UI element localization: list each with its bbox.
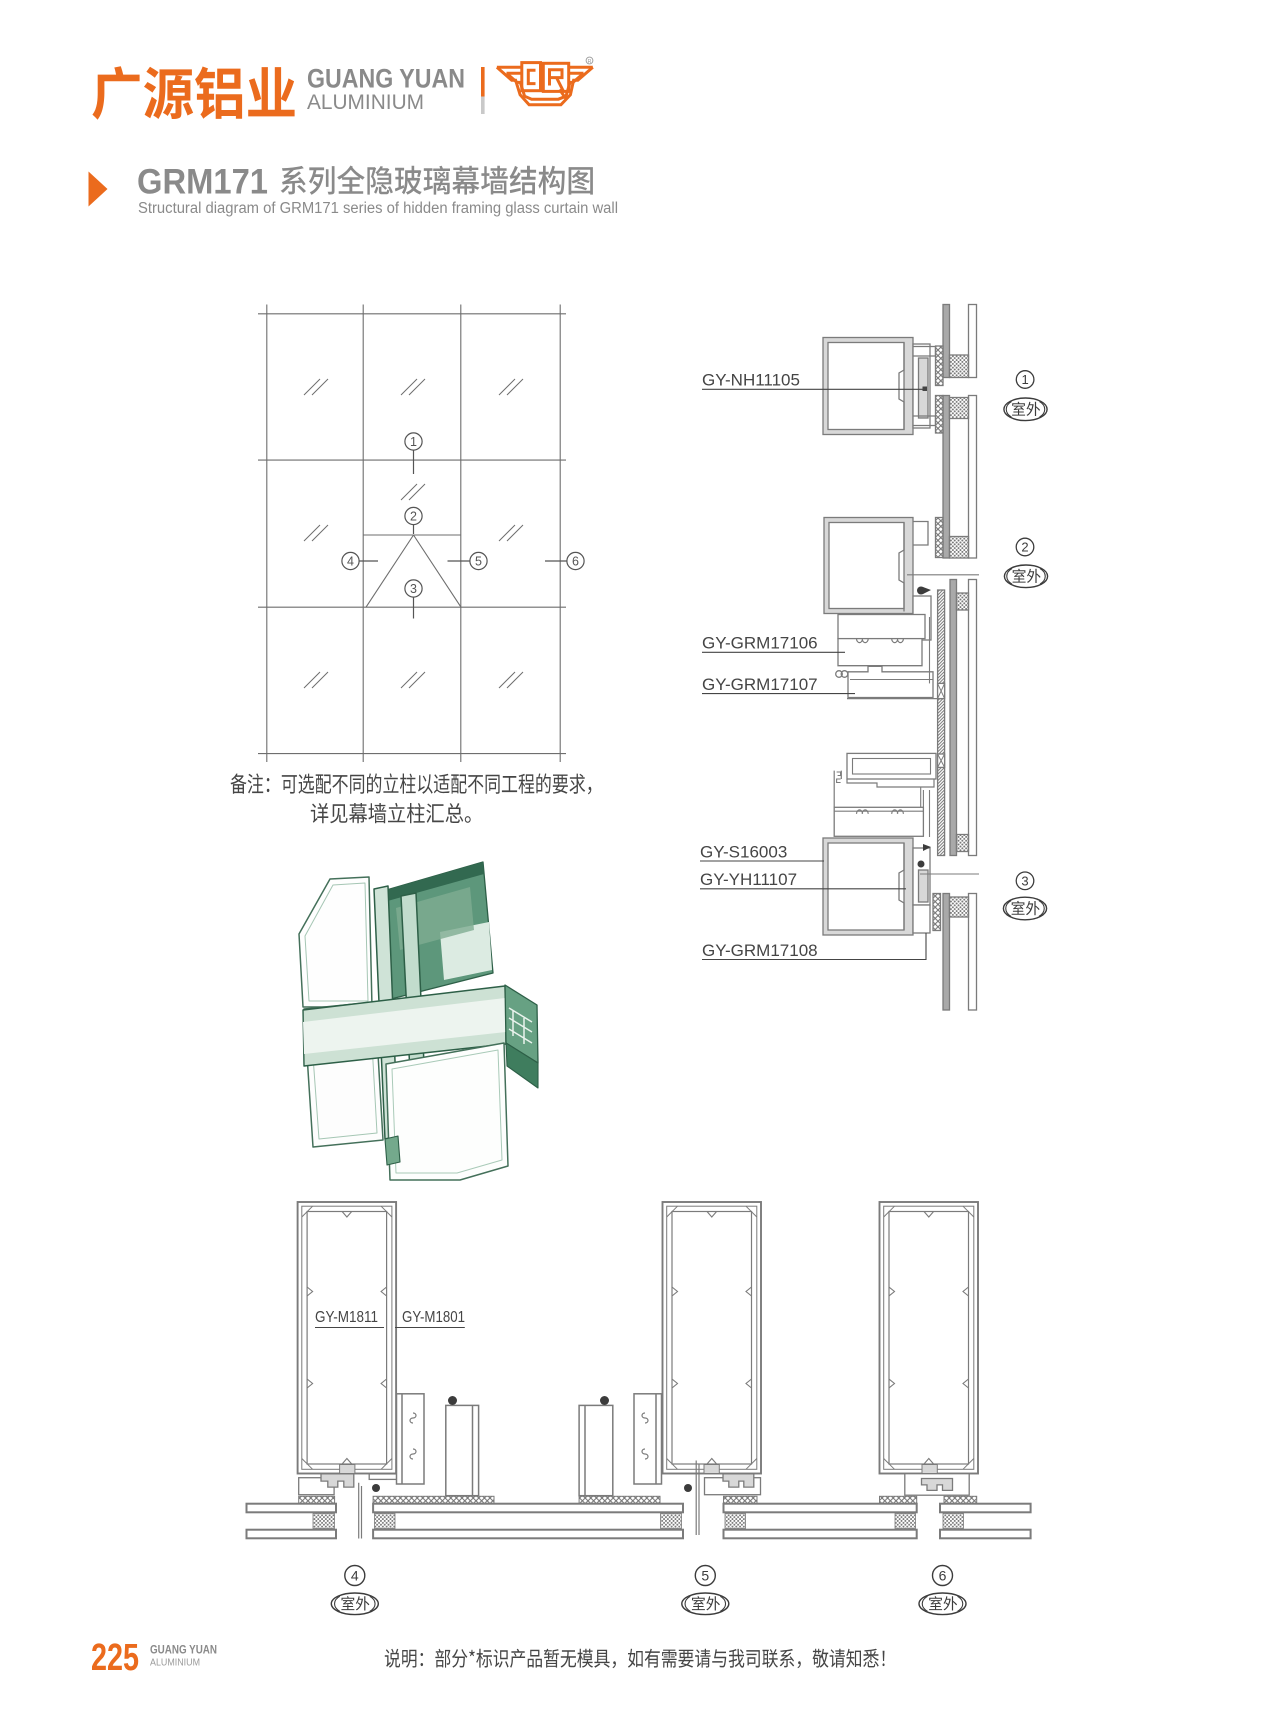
svg-text:GY-GRM17106: GY-GRM17106 — [702, 634, 818, 653]
svg-text:GUANG YUAN: GUANG YUAN — [150, 1643, 217, 1657]
svg-text:GY-GRM17108: GY-GRM17108 — [702, 941, 818, 960]
svg-text:Structural diagram of GRM171: Structural diagram of GRM171 series of h… — [138, 200, 618, 217]
svg-text:5: 5 — [475, 555, 482, 569]
svg-text:3: 3 — [1021, 874, 1028, 889]
svg-text:GY-S16003: GY-S16003 — [700, 843, 787, 862]
svg-text:4: 4 — [347, 555, 354, 569]
svg-text:GY-M1811: GY-M1811 — [315, 1309, 378, 1326]
svg-text:4: 4 — [351, 1568, 359, 1584]
svg-text:ALUMINIUM: ALUMINIUM — [150, 1657, 200, 1669]
svg-text:2: 2 — [410, 510, 417, 524]
svg-text:R: R — [588, 59, 592, 65]
svg-text:GY-NH11105: GY-NH11105 — [702, 371, 800, 390]
svg-text:225: 225 — [91, 1637, 139, 1679]
svg-text:GY-YH11107: GY-YH11107 — [700, 870, 797, 889]
svg-text:ALUMINIUM: ALUMINIUM — [307, 90, 424, 114]
svg-text:6: 6 — [939, 1568, 947, 1584]
svg-text:GY-M1801: GY-M1801 — [402, 1309, 465, 1326]
svg-text:6: 6 — [572, 555, 579, 569]
svg-text:GY-GRM17107: GY-GRM17107 — [702, 675, 818, 694]
svg-text:2: 2 — [1021, 540, 1028, 555]
svg-text:1: 1 — [410, 435, 417, 449]
svg-text:GRM171: GRM171 — [137, 163, 268, 202]
svg-text:5: 5 — [701, 1568, 709, 1584]
svg-text:GUANG YUAN: GUANG YUAN — [307, 64, 465, 94]
svg-text:1: 1 — [1021, 372, 1028, 387]
svg-text:3: 3 — [410, 582, 417, 596]
